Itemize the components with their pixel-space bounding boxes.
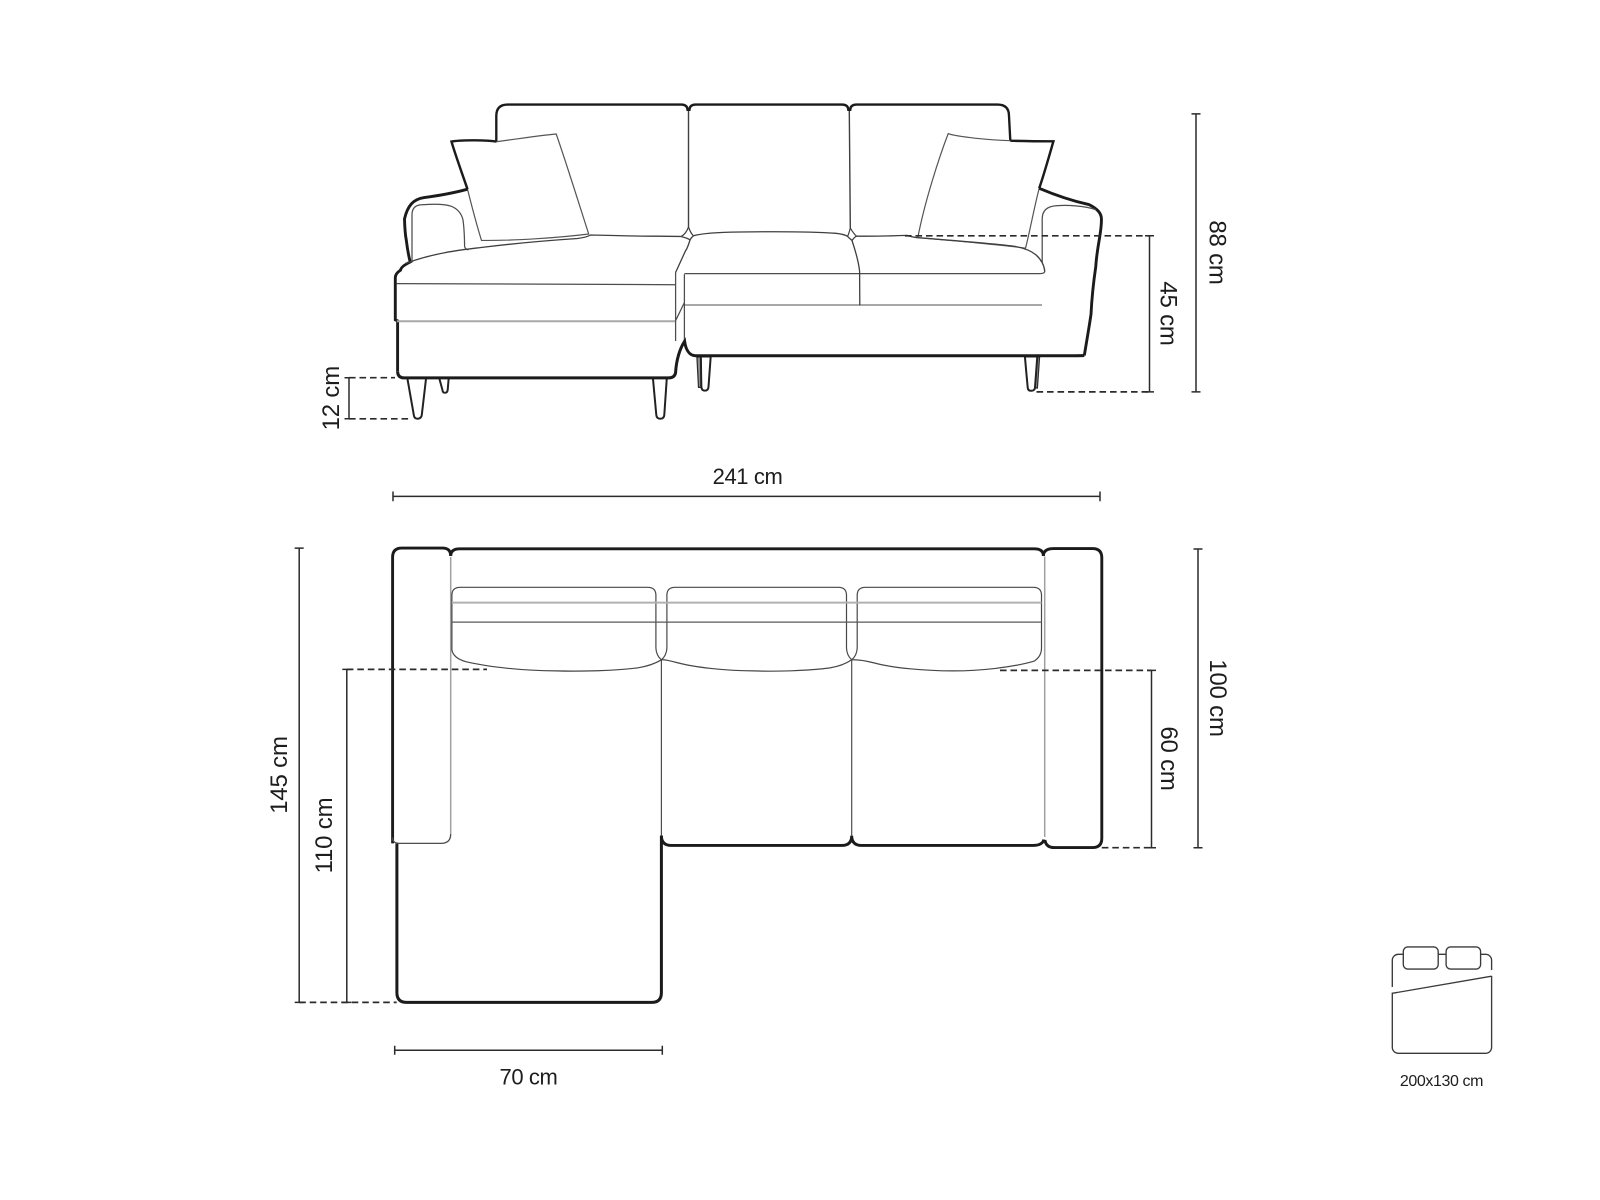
svg-text:70 cm: 70 cm xyxy=(500,1064,558,1089)
svg-text:45 cm: 45 cm xyxy=(1155,281,1182,345)
svg-text:12 cm: 12 cm xyxy=(318,366,345,430)
svg-text:241 cm: 241 cm xyxy=(713,464,783,489)
svg-text:100 cm: 100 cm xyxy=(1204,659,1231,737)
svg-text:110 cm: 110 cm xyxy=(311,798,338,874)
svg-text:60 cm: 60 cm xyxy=(1155,726,1182,790)
svg-text:145 cm: 145 cm xyxy=(266,736,293,814)
svg-text:200x130 cm: 200x130 cm xyxy=(1400,1073,1483,1090)
svg-text:88 cm: 88 cm xyxy=(1204,220,1231,284)
